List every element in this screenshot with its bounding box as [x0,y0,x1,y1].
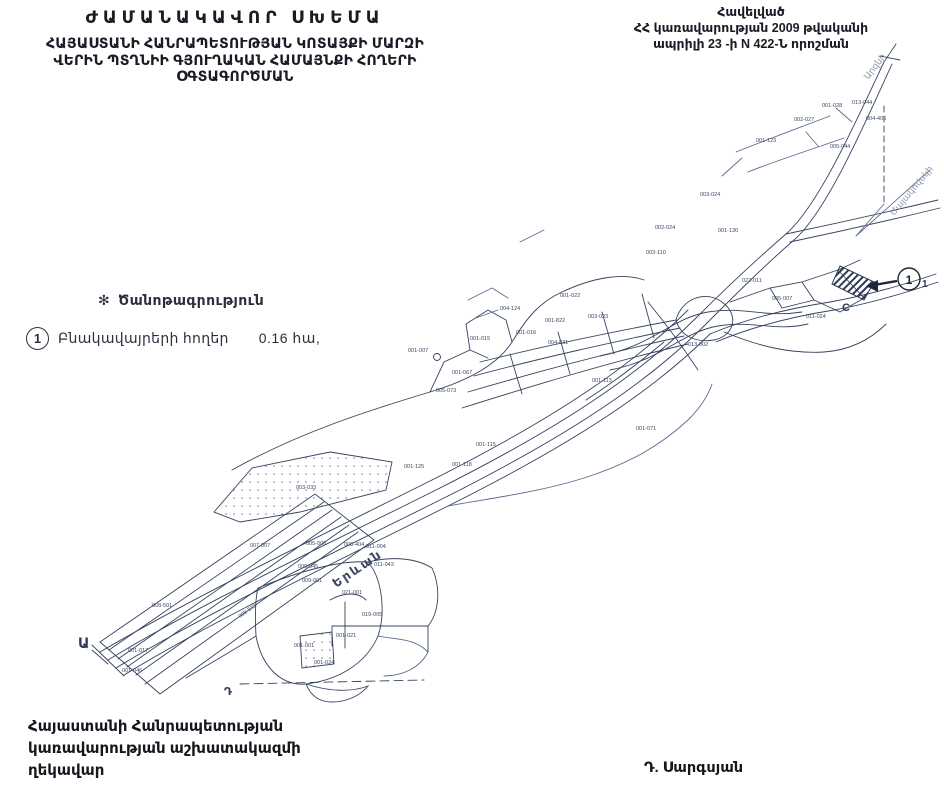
parcel-code-label: 001-016 [516,330,536,336]
approval-line-1: Հավելված [562,4,940,20]
parcel-code-label: 003-023 [588,314,608,320]
page-title: ԺԱՄԱՆԱԿԱՎՈՐ ՍԽԵՄԱ [0,8,470,28]
parcel-code-label: 001-022 [560,293,580,299]
parcel-code-label: 021-001 [342,590,362,596]
parcel-code-label: 005-006 [306,541,326,547]
parcel-code-label: 005-044 [830,144,850,150]
scanned-map-document: { "header": { "title_lines": [ "ԺԱՄԱՆԱԿԱ… [0,0,944,802]
parcel-code-label: 001-021 [336,633,356,639]
parcel-code-label: 019-005 [362,612,382,618]
page-subtitle-line-2: ՎԵՐԻՆ ՊՏՂՆԻԻ ԳՅՈՒՂԱԿԱՆ ՀԱՄԱՅՆՔԻ ՀՈՂԵՐԻ [0,52,470,69]
map-annotation-label: Երևան [330,547,385,591]
legend-item-label: Բնակավայրերի հողեր [58,330,229,347]
map-line-work [92,44,940,702]
approval-line-2: ՀՀ կառավարության 2009 թվականի [562,20,940,36]
approval-line-3: ապրիլի 23 -ի N 422-Ն որոշման [562,36,940,52]
parcel-code-label: 003-024 [700,192,720,198]
parcel-code-label: 008-533 [238,603,258,619]
map-annotation-label: 1 [906,273,913,287]
legend-note-title: Ծանոթագրություն [118,292,264,308]
parcel-code-label: 001-046 [122,668,142,674]
map-annotation-label: Մայակովսկի [888,164,935,217]
parcel-code-label: 001-017 [128,648,148,654]
map-annotation-label: Ա [78,635,89,651]
parcel-code-label: 022-011 [742,278,762,284]
map-annotation-label: Դ [224,686,233,698]
issuer-line-1: Հայաստանի Հանրապետության [28,716,301,738]
parcel-code-label: 008-404 [344,542,364,548]
parcel-code-label: 013-002 [688,342,708,348]
parcel-code-label: 013-044 [852,100,872,106]
parcel-code-label: 001-024 [314,660,334,666]
parcel-code-label: 001-113 [592,378,612,384]
parcel-code-label: 009-001 [302,578,322,584]
approval-block: Հավելված ՀՀ կառավարության 2009 թվականի ա… [562,4,940,52]
issuer-block: Հայաստանի Հանրապետության կառավարության ա… [28,716,301,782]
legend-item-marker: 1 [26,327,49,350]
map-annotation-label: Արզնի [862,52,888,82]
legend-item-value: 0.16 հա, [259,330,321,347]
page-subtitle-line-1: ՀԱՅԱՍՏԱՆԻ ՀԱՆՐԱՊԵՏՈՒԹՅԱՆ ԿՈՏԱՅՔԻ ՄԱՐԶԻ [0,35,470,52]
parcel-code-label: 011-024 [806,314,826,320]
parcel-code-label: 001-130 [718,228,738,234]
map-annotation-label: 1 [922,279,928,290]
parcel-code-label: 004-405 [866,116,886,122]
parcel-code-label: 003-033 [296,485,316,491]
signature: Դ. Սարգսյան [644,760,743,776]
parcel-code-label: 001-007 [408,348,428,354]
map-labels: 001-123002-027001-028013-044005-044004-4… [78,52,935,698]
parcel-code-label: 004-124 [500,306,520,312]
map-annotation-label: C [842,302,850,314]
parcel-code-label: 001-001 [294,643,314,649]
legend-note: ✻Ծանոթագրություն [98,292,264,309]
cadastral-map: 001-123002-027001-028013-044005-044004-4… [0,0,944,802]
parcel-code-label: 001-071 [636,426,656,432]
parcel-code-label: 001-067 [452,370,472,376]
parcel-code-label: 001-822 [545,318,565,324]
issuer-line-2: կառավարության աշխատակազմի [28,738,301,760]
title-block: ԺԱՄԱՆԱԿԱՎՈՐ ՍԽԵՄԱ ՀԱՅԱՍՏԱՆԻ ՀԱՆՐԱՊԵՏՈՒԹՅ… [0,8,470,85]
issuer-line-3: ղեկավար [28,760,301,782]
parcel-code-label: 001-115 [476,442,496,448]
legend-item: 1 Բնակավայրերի հողեր 0.16 հա, [26,327,320,350]
parcel-code-label: 001-028 [822,103,842,109]
parcel-code-label: 007-007 [250,543,270,549]
parcel-code-label: 005-007 [772,296,792,302]
parcel-code-label: 004-031 [548,340,568,346]
asterisk-icon: ✻ [98,292,110,308]
parcel-code-label: 001-015 [470,336,490,342]
parcel-code-label: 005-073 [436,388,456,394]
parcel-code-label: 002-024 [655,225,675,231]
parcel-code-label: 008-501 [152,603,172,609]
parcel-code-label: 001-118 [452,462,472,468]
parcel-code-label: 009-045 [298,564,318,570]
parcel-code-label: 003-110 [646,250,666,256]
parcel-code-label: 002-027 [794,117,814,123]
parcel-code-label: 001-125 [404,464,424,470]
page-subtitle-line-3: ՕԳՏԱԳՈՐԾՄԱՆ [0,68,470,85]
parcel-code-label: 001-123 [756,138,776,144]
